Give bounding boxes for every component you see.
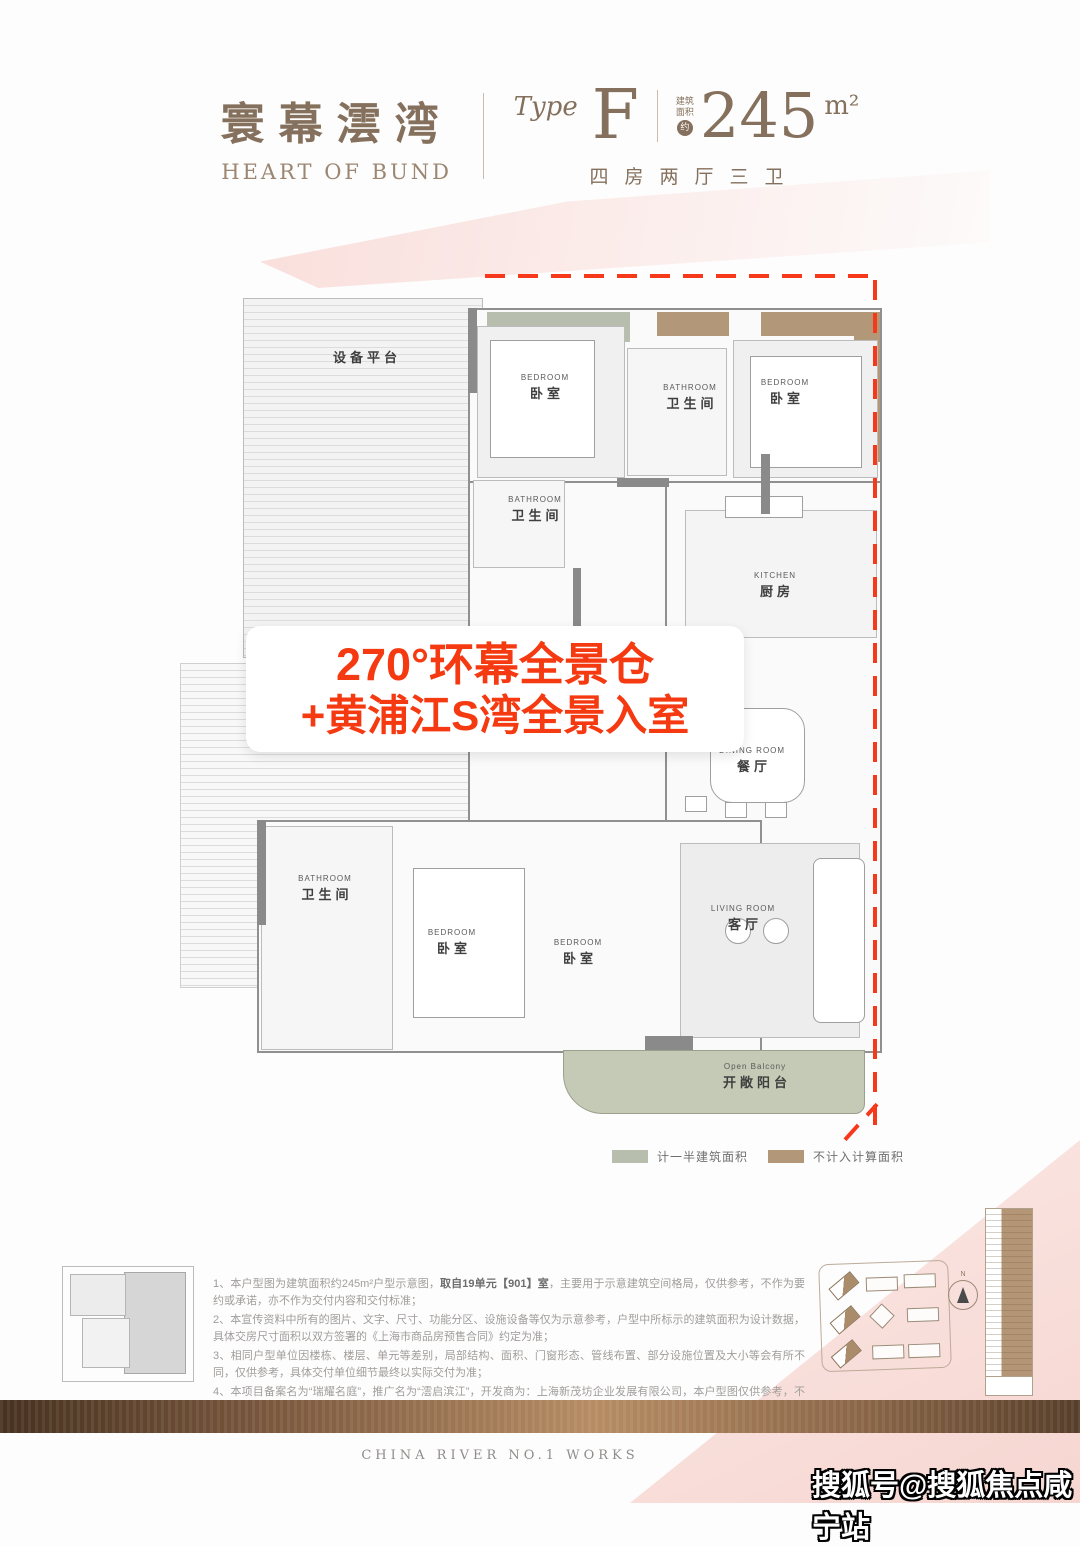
- area-number: 245: [700, 85, 818, 147]
- disclaimer-line-2: 2、本宣传资料中所有的图片、文字、尺寸、功能分区、设施设备等仅为示意参考，户型中…: [213, 1312, 805, 1346]
- sofa: [813, 858, 865, 1023]
- legend-half-area: 计一半建筑面积: [612, 1148, 748, 1165]
- dining-chair-1: [685, 796, 707, 812]
- wall-segment: [617, 478, 669, 487]
- type-area-row: Type F 建筑 面积 约 245 m²: [514, 82, 860, 150]
- label-kitchen: KITCHEN 厨房: [715, 571, 835, 600]
- room-bathroom-mid: [473, 480, 565, 568]
- label-bathroom-lower: BATHROOM 卫生间: [265, 874, 385, 903]
- site-building-5: [904, 1273, 936, 1288]
- site-building-6: [907, 1307, 939, 1322]
- site-plan: [818, 1260, 952, 1372]
- excluded-strip-1: [657, 312, 729, 336]
- wall-segment: [761, 454, 770, 514]
- key-plan-thumbnail: [52, 1260, 207, 1392]
- room-layout-text: 四房两厅三卫: [573, 162, 799, 189]
- red-dashed-top: [485, 274, 875, 278]
- legend-excluded-area: 不计入计算面积: [768, 1148, 904, 1165]
- headline-banner: 270°环幕全景仓 +黄浦江S湾全景入室: [246, 626, 744, 752]
- brand-name-en: HEART OF BUND: [221, 160, 453, 184]
- key-plan-highlighted-unit: [124, 1272, 186, 1374]
- bed-top-right: [750, 356, 862, 468]
- header-divider: [483, 93, 484, 179]
- key-plan-unit-3: [82, 1318, 130, 1368]
- label-bedroom-lower-main: BEDROOM 卧室: [392, 928, 512, 957]
- legend-swatch-brown: [768, 1150, 804, 1163]
- room-bathroom-lower: [261, 826, 393, 1050]
- legend-label-brown: 不计入计算面积: [813, 1148, 904, 1165]
- tower-elevation: [985, 1208, 1033, 1396]
- site-building-7: [872, 1344, 904, 1359]
- label-bedroom-top-left: BEDROOM 卧室: [485, 373, 605, 402]
- brand-name-cn: 寰幕澐湾: [221, 88, 453, 152]
- approx-badge: 约: [677, 120, 693, 136]
- footer-slogan: CHINA RIVER NO.1 WORKS: [330, 1448, 670, 1463]
- label-bedroom-lower-small: BEDROOM 卧室: [518, 938, 638, 967]
- brand-block: 寰幕澐湾 HEART OF BUND: [221, 88, 453, 184]
- bronze-divider-bar: [0, 1400, 1080, 1433]
- unit-type-block: Type F 建筑 面积 约 245 m² 四房两厅三卫: [514, 82, 860, 189]
- area-unit: m²: [824, 91, 859, 121]
- area-caption: 建筑 面积 约: [676, 96, 694, 136]
- room-bathroom-top: [627, 348, 727, 476]
- legend-swatch-green: [612, 1150, 648, 1163]
- label-open-balcony: Open Balcony 开敞阳台: [695, 1062, 815, 1091]
- site-building-highlight-2: [830, 1305, 861, 1334]
- dining-chair-2: [725, 802, 747, 818]
- area-caption-line2: 面积: [676, 107, 694, 118]
- key-plan-unit-2: [70, 1274, 126, 1316]
- dining-chair-3: [765, 802, 787, 818]
- equipment-platform-label: 设备平台: [305, 346, 425, 366]
- type-label: Type: [514, 92, 578, 122]
- site-building-9: [869, 1303, 894, 1328]
- site-building-8: [908, 1343, 940, 1358]
- headline-line2: +黄浦江S湾全景入室: [301, 692, 690, 740]
- disclaimer-line-3: 3、相同户型单位因楼栋、楼层、单元等差别，局部结构、面积、门窗形态、管线布置、部…: [213, 1348, 805, 1382]
- red-dashed-right: [873, 280, 877, 1130]
- label-bedroom-top-right: BEDROOM 卧室: [725, 378, 845, 407]
- site-building-4: [866, 1277, 898, 1292]
- area-caption-line1: 建筑: [676, 96, 694, 107]
- wall-segment: [645, 1036, 693, 1051]
- area-group: 建筑 面积 约 245 m²: [676, 85, 859, 147]
- disclaimer-line-1: 1、本户型图为建筑面积约245m²户型示意图，取自19单元【901】室，主要用于…: [213, 1276, 805, 1310]
- type-area-divider: [657, 90, 658, 142]
- site-building-highlight-3: [831, 1339, 862, 1368]
- type-value: F: [592, 82, 639, 150]
- headline-line1: 270°环幕全景仓: [336, 638, 654, 692]
- header: 寰幕澐湾 HEART OF BUND Type F 建筑 面积 约 245 m²…: [0, 82, 1080, 189]
- legend-label-green: 计一半建筑面积: [657, 1148, 748, 1165]
- wall-segment: [257, 820, 266, 925]
- watermark: 搜狐号@搜狐焦点咸宁站: [812, 1462, 1080, 1546]
- site-building-highlight-1: [828, 1271, 859, 1300]
- north-arrow-icon: N: [948, 1280, 978, 1310]
- label-bathroom-mid: BATHROOM 卫生间: [475, 495, 595, 524]
- wall-segment: [468, 308, 477, 393]
- label-living-room: LIVING ROOM 客厅: [683, 904, 803, 933]
